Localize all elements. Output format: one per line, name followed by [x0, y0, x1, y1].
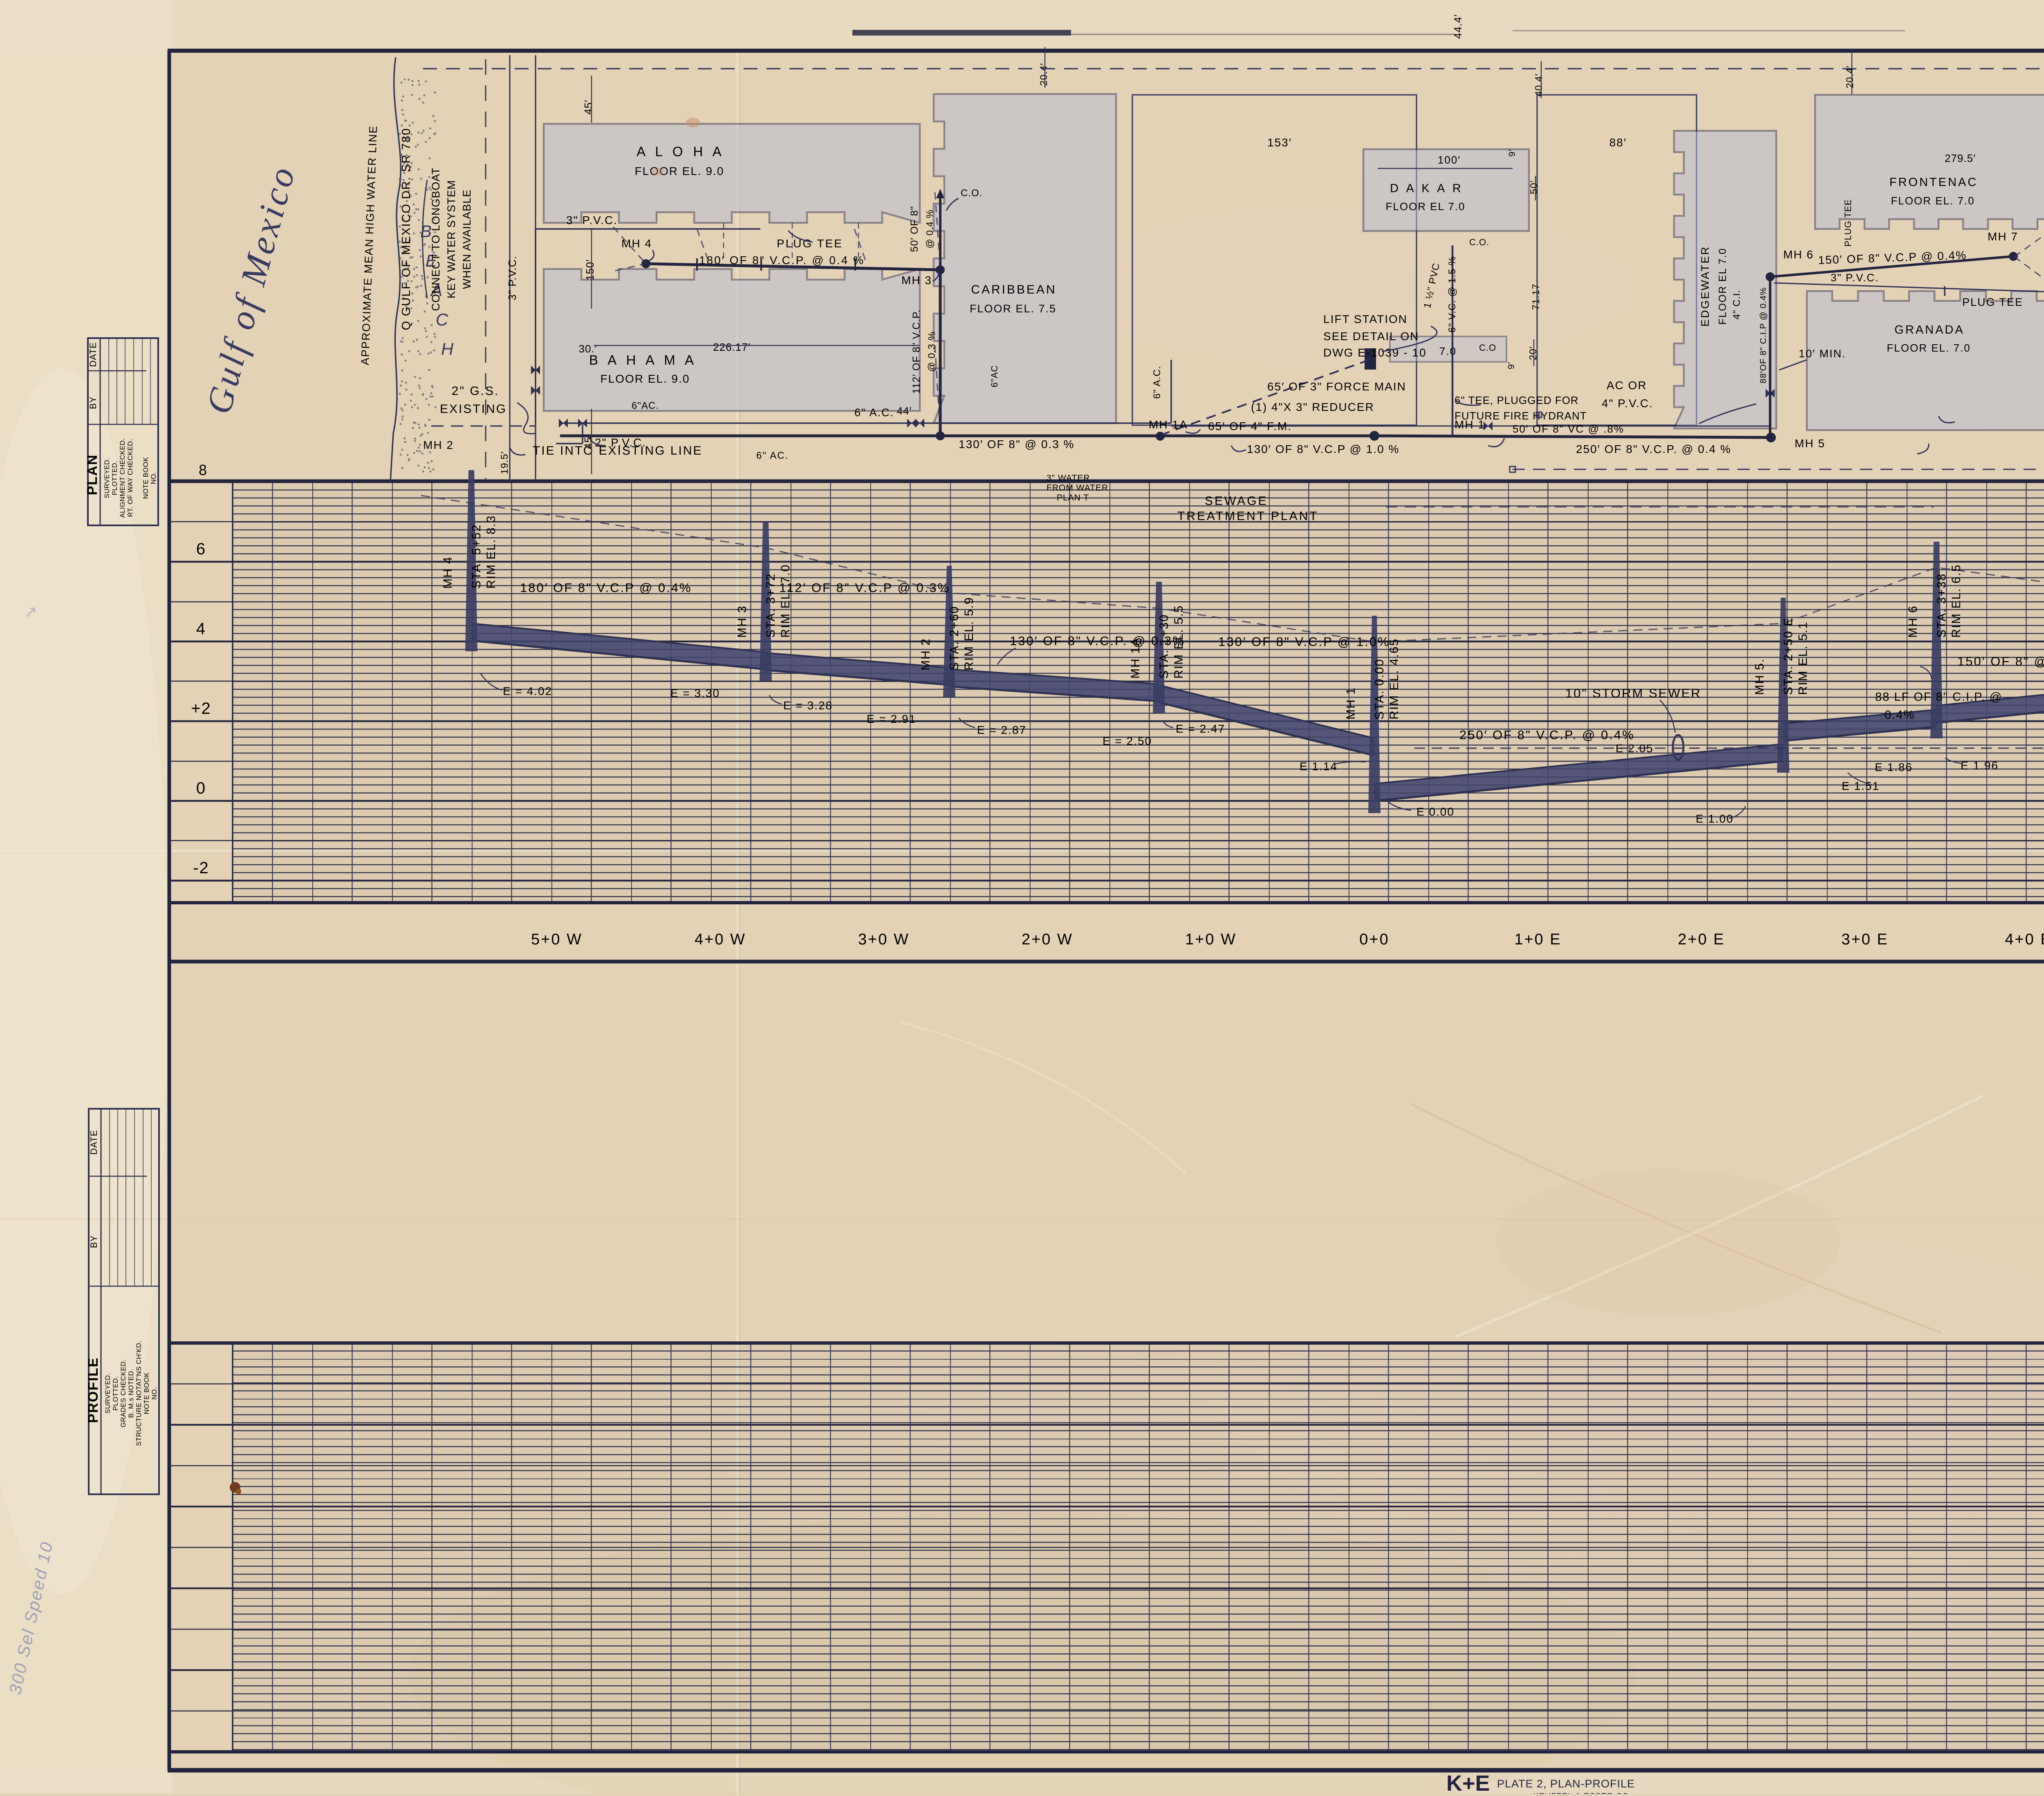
svg-text:7.0: 7.0 — [1439, 345, 1457, 357]
svg-text:FLOOR EL 7.0: FLOOR EL 7.0 — [1717, 248, 1728, 325]
svg-text:EDGEWATER: EDGEWATER — [1699, 246, 1711, 327]
svg-text:E = 2.47: E = 2.47 — [1176, 722, 1225, 735]
svg-text:E 2.05: E 2.05 — [1616, 742, 1654, 755]
svg-text:2+0 W: 2+0 W — [1022, 931, 1073, 948]
svg-text:9′: 9′ — [1507, 149, 1517, 157]
svg-text:Q GULF OF MEXICO DR. SR 780: Q GULF OF MEXICO DR. SR 780 — [400, 128, 413, 330]
svg-text:B. M.s NOTED.: B. M.s NOTED. — [128, 1369, 135, 1418]
svg-text:FLOOR EL. 7.0: FLOOR EL. 7.0 — [1887, 342, 1970, 354]
svg-text:C.O.: C.O. — [961, 188, 982, 199]
svg-text:PLATE 2, PLAN-PROFILE: PLATE 2, PLAN-PROFILE — [1497, 1778, 1635, 1790]
svg-text:PLUG TEE: PLUG TEE — [1962, 296, 2023, 308]
svg-text:PLAN: PLAN — [85, 454, 100, 496]
svg-text:4" P.V.C.: 4" P.V.C. — [1602, 397, 1653, 410]
svg-text:E = 3.28: E = 3.28 — [783, 699, 833, 712]
svg-text:(1) 4"X 3" REDUCER: (1) 4"X 3" REDUCER — [1251, 401, 1374, 413]
svg-text:30.′: 30.′ — [578, 343, 597, 355]
svg-text:A L O H A: A L O H A — [637, 144, 725, 159]
svg-text:2+0 E: 2+0 E — [1678, 931, 1725, 948]
svg-text:BY: BY — [89, 1235, 99, 1248]
svg-text:153′: 153′ — [1267, 136, 1292, 149]
svg-text:88′: 88′ — [1609, 136, 1627, 149]
svg-text:BY: BY — [88, 396, 98, 409]
svg-text:PLUG TEE: PLUG TEE — [777, 237, 843, 250]
svg-text:MH 3: MH 3 — [901, 274, 932, 287]
svg-text:EXISTING: EXISTING — [440, 402, 507, 416]
svg-text:SEE DETAIL ON: SEE DETAIL ON — [1323, 330, 1419, 343]
svg-text:6"AC: 6"AC — [989, 365, 1000, 388]
svg-text:150′: 150′ — [584, 259, 596, 280]
svg-text:PROFILE: PROFILE — [85, 1357, 101, 1423]
svg-text:2" G.S.: 2" G.S. — [452, 384, 500, 398]
svg-text:STRUCTURE NOTAT'NS CH'KD.: STRUCTURE NOTAT'NS CH'KD. — [135, 1341, 143, 1446]
svg-text:RIM EL. 7.0: RIM EL. 7.0 — [779, 564, 792, 638]
svg-text:E 1.86: E 1.86 — [1875, 761, 1913, 774]
svg-text:FUTURE FIRE HYDRANT: FUTURE FIRE HYDRANT — [1455, 410, 1587, 422]
svg-text:STA. 2+50 E: STA. 2+50 E — [1782, 617, 1795, 695]
svg-text:DWG E-1039 - 10: DWG E-1039 - 10 — [1323, 346, 1427, 359]
svg-text:PLAN T: PLAN T — [1057, 493, 1089, 502]
svg-text:4+0 E: 4+0 E — [2005, 931, 2044, 948]
svg-text:STA. 0.00: STA. 0.00 — [1373, 659, 1386, 720]
svg-text:E 1.14: E 1.14 — [1300, 760, 1338, 773]
svg-text:MH 7: MH 7 — [1988, 230, 2018, 243]
svg-text:10" STORM SEWER: 10" STORM SEWER — [1565, 686, 1701, 700]
svg-text:150′ OF 8" @ 0.4%: 150′ OF 8" @ 0.4% — [1957, 654, 2044, 668]
svg-text:NOTE BOOK: NOTE BOOK — [142, 457, 150, 499]
svg-text:C: C — [436, 310, 448, 329]
svg-text:1+0 W: 1+0 W — [1185, 931, 1237, 948]
svg-text:E = 2.50: E = 2.50 — [1103, 735, 1152, 747]
svg-text:RIM EL. 8.3: RIM EL. 8.3 — [484, 515, 498, 589]
svg-text:0: 0 — [196, 779, 206, 797]
svg-text:MH 5: MH 5 — [1795, 437, 1825, 450]
svg-text:STA. 2+60: STA. 2+60 — [948, 606, 961, 670]
svg-text:FLOOR EL. 9.0: FLOOR EL. 9.0 — [601, 372, 690, 385]
svg-text:RIM EL. 5.1: RIM EL. 5.1 — [1796, 621, 1810, 695]
svg-text:MH 4: MH 4 — [621, 237, 652, 250]
svg-text:6" V.C. @ 1.5 %: 6" V.C. @ 1.5 % — [1447, 256, 1458, 332]
svg-text:NO.: NO. — [150, 472, 157, 484]
svg-text:E = 2.91: E = 2.91 — [867, 713, 916, 725]
svg-text:20.4′: 20.4′ — [1038, 63, 1049, 86]
svg-text:C.O: C.O — [1479, 343, 1496, 353]
svg-text:MH 2: MH 2 — [423, 439, 454, 451]
svg-text:E = 4.02: E = 4.02 — [503, 685, 552, 697]
svg-text:6" A.C.: 6" A.C. — [1152, 366, 1163, 399]
svg-text:8: 8 — [199, 462, 208, 478]
svg-text:3" WATER: 3" WATER — [1047, 473, 1090, 483]
svg-text:MH 1: MH 1 — [1344, 687, 1358, 720]
svg-text:+2: +2 — [191, 700, 211, 718]
svg-text:4+0 W: 4+0 W — [695, 931, 746, 948]
svg-text:20′: 20′ — [1528, 346, 1539, 360]
svg-text:TIE INTO EXISTING LINE: TIE INTO EXISTING LINE — [533, 444, 703, 457]
svg-text:6" TEE, PLUGGED FOR: 6" TEE, PLUGGED FOR — [1455, 394, 1579, 406]
svg-text:E = 2.87: E = 2.87 — [977, 724, 1026, 736]
svg-text:4: 4 — [196, 620, 206, 638]
svg-text:C.O.: C.O. — [1469, 237, 1489, 247]
svg-text:9′: 9′ — [1506, 362, 1516, 369]
svg-text:MH 6: MH 6 — [1783, 248, 1814, 261]
svg-text:GRANADA: GRANADA — [1894, 323, 1964, 336]
svg-text:44′: 44′ — [897, 405, 912, 417]
svg-text:50′: 50′ — [1529, 180, 1540, 194]
svg-text:130′ OF 8" V.C.P @ 1.0 %: 130′ OF 8" V.C.P @ 1.0 % — [1247, 443, 1399, 455]
svg-text:65′ OF 4" F.M.: 65′ OF 4" F.M. — [1208, 420, 1292, 433]
svg-text:AC OR: AC OR — [1607, 379, 1647, 392]
svg-text:FLOOR EL 7.0: FLOOR EL 7.0 — [1386, 200, 1466, 213]
svg-text:130′ OF 8" @ 0.3 %: 130′ OF 8" @ 0.3 % — [959, 438, 1075, 451]
svg-text:1+0 E: 1+0 E — [1514, 931, 1561, 948]
svg-text:NO.: NO. — [151, 1387, 158, 1400]
svg-text:TREATMENT PLANT: TREATMENT PLANT — [1177, 509, 1319, 523]
svg-text:180′ OF 8" V.C.P @ 0.4%: 180′ OF 8" V.C.P @ 0.4% — [520, 581, 692, 595]
svg-text:SURVEYED.: SURVEYED. — [104, 1373, 112, 1414]
svg-text:0+0: 0+0 — [1359, 931, 1389, 948]
svg-text:MH 4: MH 4 — [441, 556, 455, 589]
svg-text:44.4′: 44.4′ — [1452, 14, 1464, 39]
svg-text:WHEN AVAILABLE: WHEN AVAILABLE — [461, 189, 473, 289]
svg-text:E 0.00: E 0.00 — [1416, 805, 1455, 818]
svg-text:3" P.V.C.: 3" P.V.C. — [566, 214, 618, 226]
svg-text:MH 2: MH 2 — [919, 638, 932, 670]
svg-text:E = 3.30: E = 3.30 — [670, 687, 720, 700]
svg-text:250′ OF 8" V.C.P. @ 0.4 %: 250′ OF 8" V.C.P. @ 0.4 % — [1576, 443, 1731, 455]
svg-text:RT. OF WAY CHECKED.: RT. OF WAY CHECKED. — [127, 439, 134, 517]
svg-text:PLOTTED.: PLOTTED. — [111, 461, 119, 496]
svg-text:6" A.C.: 6" A.C. — [854, 406, 894, 419]
svg-text:FLOOR EL. 9.0: FLOOR EL. 9.0 — [635, 165, 724, 177]
svg-text:88′OF 8" C.I.P @ 0.4%: 88′OF 8" C.I.P @ 0.4% — [1759, 287, 1768, 383]
svg-text:180′ OF 8" V.C.P. @ 0.4 %: 180′ OF 8" V.C.P. @ 0.4 % — [699, 254, 865, 267]
svg-text:5+0 W: 5+0 W — [531, 931, 583, 948]
svg-text:GRADES CHECKED.: GRADES CHECKED. — [120, 1359, 127, 1427]
svg-text:6: 6 — [196, 540, 206, 558]
svg-text:E 1.96: E 1.96 — [1961, 759, 1999, 772]
svg-text:STA. 3+72: STA. 3+72 — [764, 573, 778, 638]
svg-text:MH 3: MH 3 — [735, 605, 749, 638]
svg-text:6"AC.: 6"AC. — [632, 400, 659, 411]
svg-text:NOTE BOOK: NOTE BOOK — [143, 1372, 150, 1415]
svg-text:100′: 100′ — [1438, 154, 1461, 166]
svg-text:3+0 W: 3+0 W — [858, 931, 910, 948]
svg-text:↗: ↗ — [24, 603, 38, 621]
svg-text:3" P.V.C.: 3" P.V.C. — [506, 256, 518, 300]
svg-text:STA. 3+38: STA. 3+38 — [1935, 573, 1948, 638]
svg-text:40.4′: 40.4′ — [1533, 74, 1544, 96]
svg-text:PLOTTED.: PLOTTED. — [112, 1376, 119, 1411]
svg-text:MH 6: MH 6 — [1906, 605, 1920, 638]
svg-text:D A K A R: D A K A R — [1390, 182, 1464, 195]
svg-text:FROM WATER: FROM WATER — [1047, 483, 1108, 493]
svg-text:@ 0.4 %: @ 0.4 % — [924, 209, 935, 249]
svg-text:20.4′: 20.4′ — [1845, 65, 1856, 88]
svg-text:0.4%: 0.4% — [1885, 709, 1915, 722]
svg-text:50′ OF 8": 50′ OF 8" — [909, 206, 920, 252]
svg-text:RIM EL. 5.9: RIM EL. 5.9 — [962, 597, 976, 670]
svg-text:112′ OF 8" V.C.P @ 0.3%: 112′ OF 8" V.C.P @ 0.3% — [779, 581, 950, 595]
svg-text:250′ OF 8" V.C.P. @ 0.4%: 250′ OF 8" V.C.P. @ 0.4% — [1459, 728, 1635, 742]
svg-text:LIFT STATION: LIFT STATION — [1323, 313, 1407, 325]
svg-text:50′ OF 8" VC @ .8%: 50′ OF 8" VC @ .8% — [1513, 423, 1624, 435]
svg-text:SEWAGE: SEWAGE — [1205, 494, 1268, 508]
svg-text:KEY WATER SYSTEM: KEY WATER SYSTEM — [445, 180, 457, 298]
svg-text:130′ OF 8" V.C.P @ 1.0%: 130′ OF 8" V.C.P @ 1.0% — [1218, 635, 1390, 649]
svg-text:SURVEYED.: SURVEYED. — [103, 457, 111, 498]
svg-text:226.17′: 226.17′ — [713, 341, 750, 353]
svg-text:3" P.V.C.: 3" P.V.C. — [1831, 271, 1879, 284]
svg-text:19.5′: 19.5′ — [499, 451, 510, 474]
svg-text:88 LF OF 8" C.I.P. @: 88 LF OF 8" C.I.P. @ — [1875, 691, 2002, 704]
svg-text:3+0 E: 3+0 E — [1841, 931, 1888, 948]
svg-text:STA. 5+52: STA. 5+52 — [470, 524, 483, 589]
svg-text:71.17: 71.17 — [1531, 283, 1542, 310]
svg-text:DATE: DATE — [88, 342, 98, 367]
svg-text:FRONTENAC: FRONTENAC — [1889, 176, 1978, 189]
svg-text:CARIBBEAN: CARIBBEAN — [971, 283, 1056, 296]
svg-text:4" C.I.: 4" C.I. — [1731, 290, 1742, 320]
svg-text:K+E: K+E — [1446, 1771, 1490, 1794]
svg-text:130′ OF 8" V.C.P. @ 0.3%: 130′ OF 8" V.C.P. @ 0.3% — [1010, 634, 1185, 648]
svg-text:PLUG TEE: PLUG TEE — [1843, 199, 1853, 247]
svg-text:MH 1A: MH 1A — [1149, 418, 1188, 431]
svg-text:ALIGNMENT CHECKED.: ALIGNMENT CHECKED. — [119, 438, 126, 518]
svg-text:FLOOR EL. 7.0: FLOOR EL. 7.0 — [1891, 195, 1975, 207]
svg-text:45′: 45′ — [582, 100, 594, 115]
svg-text:-2: -2 — [193, 859, 209, 877]
svg-text:H: H — [441, 339, 454, 359]
svg-text:B A H A M A: B A H A M A — [589, 352, 697, 368]
svg-text:DATE: DATE — [89, 1130, 99, 1155]
svg-text:65′ OF 3" FORCE MAIN: 65′ OF 3" FORCE MAIN — [1267, 380, 1406, 393]
svg-text:KEUFFEL & ESSER CO.: KEUFFEL & ESSER CO. — [1533, 1792, 1632, 1794]
svg-text:FLOOR EL. 7.5: FLOOR EL. 7.5 — [970, 303, 1056, 315]
svg-text:MH 5.: MH 5. — [1753, 658, 1766, 695]
svg-text:RIM EL. 4.65: RIM EL. 4.65 — [1387, 638, 1401, 720]
svg-text:10′ MIN.: 10′ MIN. — [1799, 348, 1846, 360]
svg-text:112′ OF 8" V.C.P.: 112′ OF 8" V.C.P. — [911, 309, 922, 394]
svg-text:CONNECT TO LONGBOAT: CONNECT TO LONGBOAT — [430, 167, 442, 311]
svg-text:RIM EL. 6.5: RIM EL. 6.5 — [1950, 564, 1963, 638]
svg-text:279.5′: 279.5′ — [1945, 152, 1976, 164]
svg-text:6" AC.: 6" AC. — [756, 450, 789, 461]
svg-text:E 1.00: E 1.00 — [1696, 812, 1734, 825]
